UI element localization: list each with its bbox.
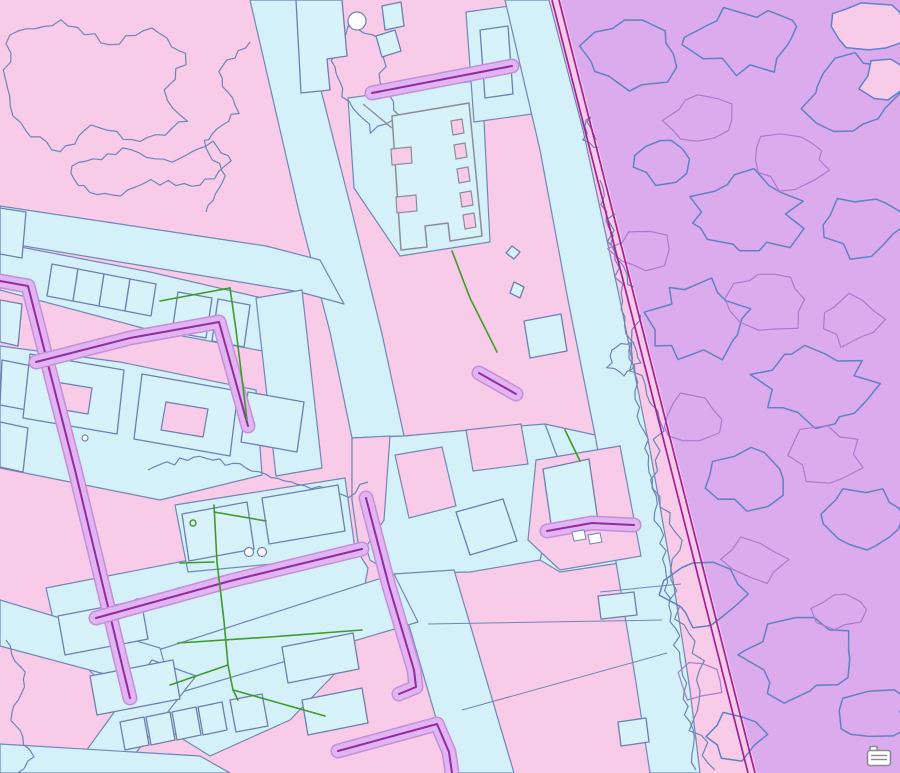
building <box>125 279 156 316</box>
building <box>146 712 175 745</box>
building <box>172 707 201 740</box>
building <box>0 208 26 258</box>
map-canvas <box>0 0 900 773</box>
building <box>230 694 268 732</box>
building <box>0 422 28 472</box>
building <box>524 314 567 358</box>
map-viewport[interactable] <box>0 0 900 773</box>
building <box>120 717 149 750</box>
legend-toggle-button[interactable] <box>864 744 894 768</box>
building <box>382 2 404 30</box>
building <box>0 300 22 346</box>
building <box>198 702 227 735</box>
layers-list-icon <box>864 744 894 768</box>
building <box>598 592 637 619</box>
building <box>618 718 649 746</box>
